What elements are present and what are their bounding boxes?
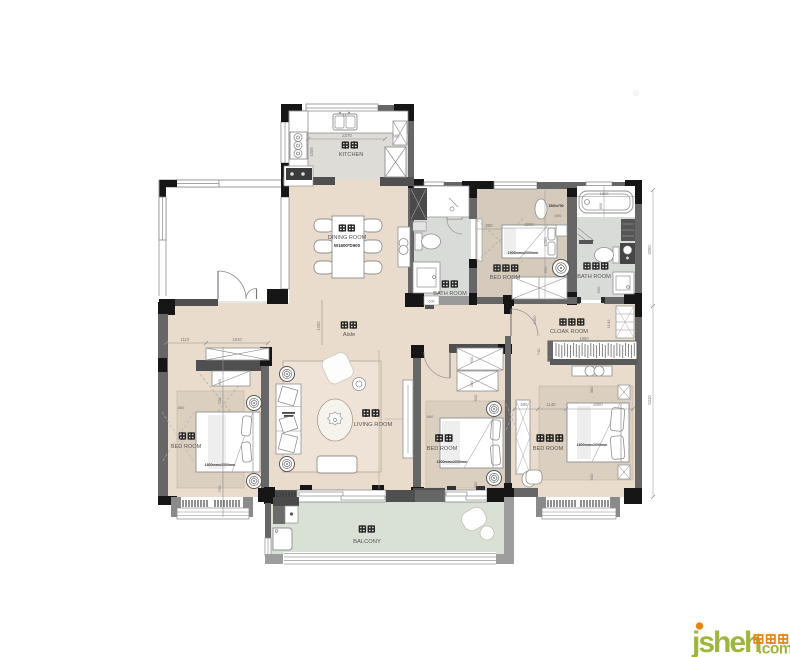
svg-text:1110: 1110	[181, 337, 190, 342]
svg-text:750: 750	[217, 485, 222, 492]
svg-text:1810: 1810	[232, 337, 242, 342]
svg-text:1900mmx2000mm: 1900mmx2000mm	[508, 251, 539, 255]
svg-text:740: 740	[536, 348, 541, 355]
svg-text:jsheh: jsheh	[691, 626, 761, 657]
svg-text:1800mmx2000mm: 1800mmx2000mm	[205, 463, 236, 467]
svg-text:600: 600	[217, 378, 222, 385]
svg-text:BATH ROOM: BATH ROOM	[577, 274, 611, 280]
svg-text:1060: 1060	[532, 315, 537, 325]
svg-text:900: 900	[596, 286, 601, 293]
svg-text:600: 600	[555, 213, 562, 218]
svg-text:1140: 1140	[546, 402, 556, 407]
svg-text:BED ROOM: BED ROOM	[171, 444, 202, 450]
svg-text:1500mmx2000mm: 1500mmx2000mm	[437, 460, 468, 464]
svg-text:1005: 1005	[309, 147, 314, 157]
svg-text:600: 600	[469, 356, 474, 363]
svg-text:1260: 1260	[316, 321, 321, 331]
svg-text:500: 500	[521, 402, 529, 407]
svg-text:BED ROOM: BED ROOM	[427, 446, 458, 452]
svg-text:600: 600	[428, 300, 434, 304]
svg-text:1140: 1140	[606, 319, 611, 328]
svg-text:BALCONY: BALCONY	[353, 539, 381, 545]
svg-text:BATH ROOM: BATH ROOM	[433, 291, 467, 297]
svg-text:1500x700: 1500x700	[548, 204, 563, 208]
svg-text:Aisle: Aisle	[343, 332, 356, 338]
svg-text:830: 830	[473, 394, 478, 401]
svg-text:380: 380	[589, 386, 594, 393]
svg-text:1800: 1800	[600, 191, 610, 196]
svg-text:KITCHEN: KITCHEN	[339, 152, 364, 158]
svg-text:2000: 2000	[524, 222, 534, 227]
svg-text:600: 600	[393, 134, 401, 139]
svg-text:5340: 5340	[647, 395, 652, 405]
svg-text:DINING ROOM: DINING ROOM	[328, 235, 367, 241]
svg-text:400: 400	[469, 380, 474, 387]
svg-text:1960: 1960	[579, 336, 589, 341]
svg-text:860: 860	[178, 405, 185, 410]
svg-text:3260: 3260	[647, 245, 652, 255]
svg-text:800: 800	[599, 203, 603, 209]
svg-text:1800mmx2000mm: 1800mmx2000mm	[577, 443, 608, 447]
svg-text:BED ROOM: BED ROOM	[533, 446, 564, 452]
svg-text:600: 600	[543, 266, 548, 273]
svg-text:800: 800	[473, 481, 478, 488]
svg-text:660: 660	[427, 414, 434, 419]
svg-text:CLOAK ROOM: CLOAK ROOM	[550, 329, 588, 335]
svg-text:W1600*D900: W1600*D900	[334, 243, 361, 248]
svg-text:900: 900	[589, 473, 594, 480]
svg-text:900: 900	[486, 223, 494, 228]
svg-text:2000: 2000	[593, 402, 603, 407]
svg-text:2370: 2370	[342, 133, 352, 138]
svg-text:750: 750	[217, 397, 222, 404]
svg-text:BED ROOM: BED ROOM	[490, 275, 521, 281]
svg-text:LIVING ROOM: LIVING ROOM	[354, 422, 393, 428]
svg-text:1000: 1000	[543, 237, 548, 247]
